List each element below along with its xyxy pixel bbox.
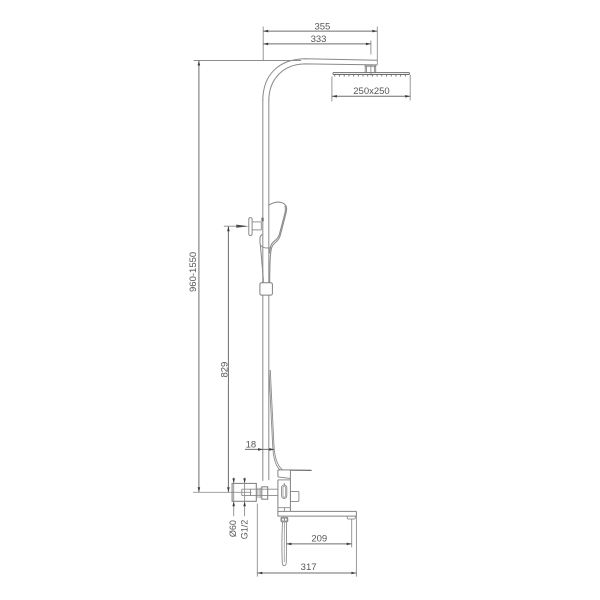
svg-text:829: 829 — [219, 362, 230, 378]
svg-text:250x250: 250x250 — [353, 86, 389, 97]
svg-text:18: 18 — [246, 440, 257, 451]
svg-text:355: 355 — [314, 21, 330, 32]
svg-text:209: 209 — [311, 534, 327, 545]
svg-text:960-1550: 960-1550 — [188, 252, 199, 292]
svg-text:Ø60: Ø60 — [228, 520, 238, 537]
svg-text:317: 317 — [301, 562, 317, 573]
svg-text:G1/2: G1/2 — [240, 520, 250, 540]
svg-text:333: 333 — [311, 34, 327, 45]
